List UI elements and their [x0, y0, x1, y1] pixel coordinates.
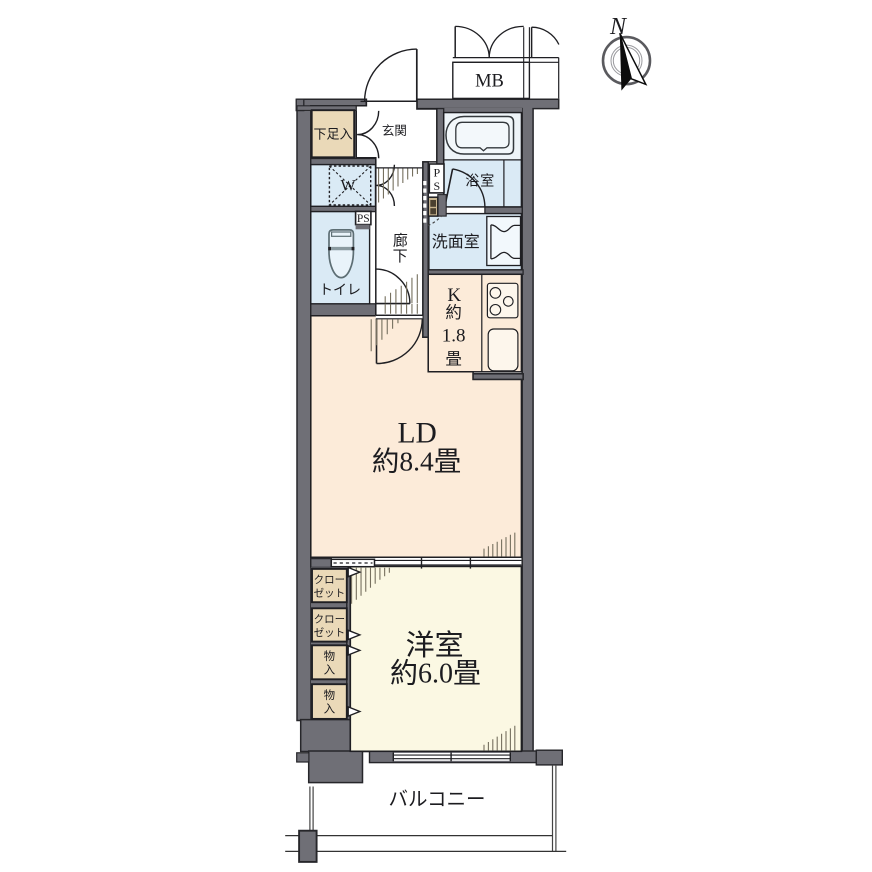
svg-text:PS: PS — [357, 213, 370, 225]
svg-text:約: 約 — [445, 303, 462, 322]
svg-text:MB: MB — [475, 72, 504, 92]
svg-text:ゼット: ゼット — [314, 588, 346, 600]
svg-text:トイレ: トイレ — [319, 284, 361, 299]
svg-text:N: N — [609, 14, 628, 40]
svg-text:P: P — [434, 166, 441, 180]
svg-text:廊: 廊 — [393, 233, 408, 250]
svg-text:畳: 畳 — [445, 350, 462, 369]
svg-text:洗面室: 洗面室 — [432, 233, 480, 251]
svg-text:物: 物 — [324, 649, 336, 663]
svg-text:クロー: クロー — [314, 574, 346, 586]
svg-text:洋室: 洋室 — [406, 629, 464, 662]
svg-text:約6.0畳: 約6.0畳 — [390, 658, 481, 690]
svg-text:クロー: クロー — [314, 614, 346, 626]
svg-text:バルコニー: バルコニー — [388, 789, 485, 811]
svg-text:下: 下 — [393, 249, 408, 265]
svg-text:S: S — [434, 179, 441, 193]
svg-text:ゼット: ゼット — [314, 627, 346, 639]
svg-text:W: W — [340, 178, 356, 195]
svg-text:物: 物 — [324, 688, 336, 702]
svg-text:1.8: 1.8 — [442, 326, 466, 347]
svg-text:約8.4畳: 約8.4畳 — [372, 446, 461, 477]
svg-text:玄関: 玄関 — [382, 123, 407, 138]
svg-text:入: 入 — [324, 703, 336, 716]
svg-text:浴室: 浴室 — [465, 173, 495, 190]
svg-text:入: 入 — [324, 663, 336, 676]
svg-text:下足入: 下足入 — [313, 127, 352, 142]
